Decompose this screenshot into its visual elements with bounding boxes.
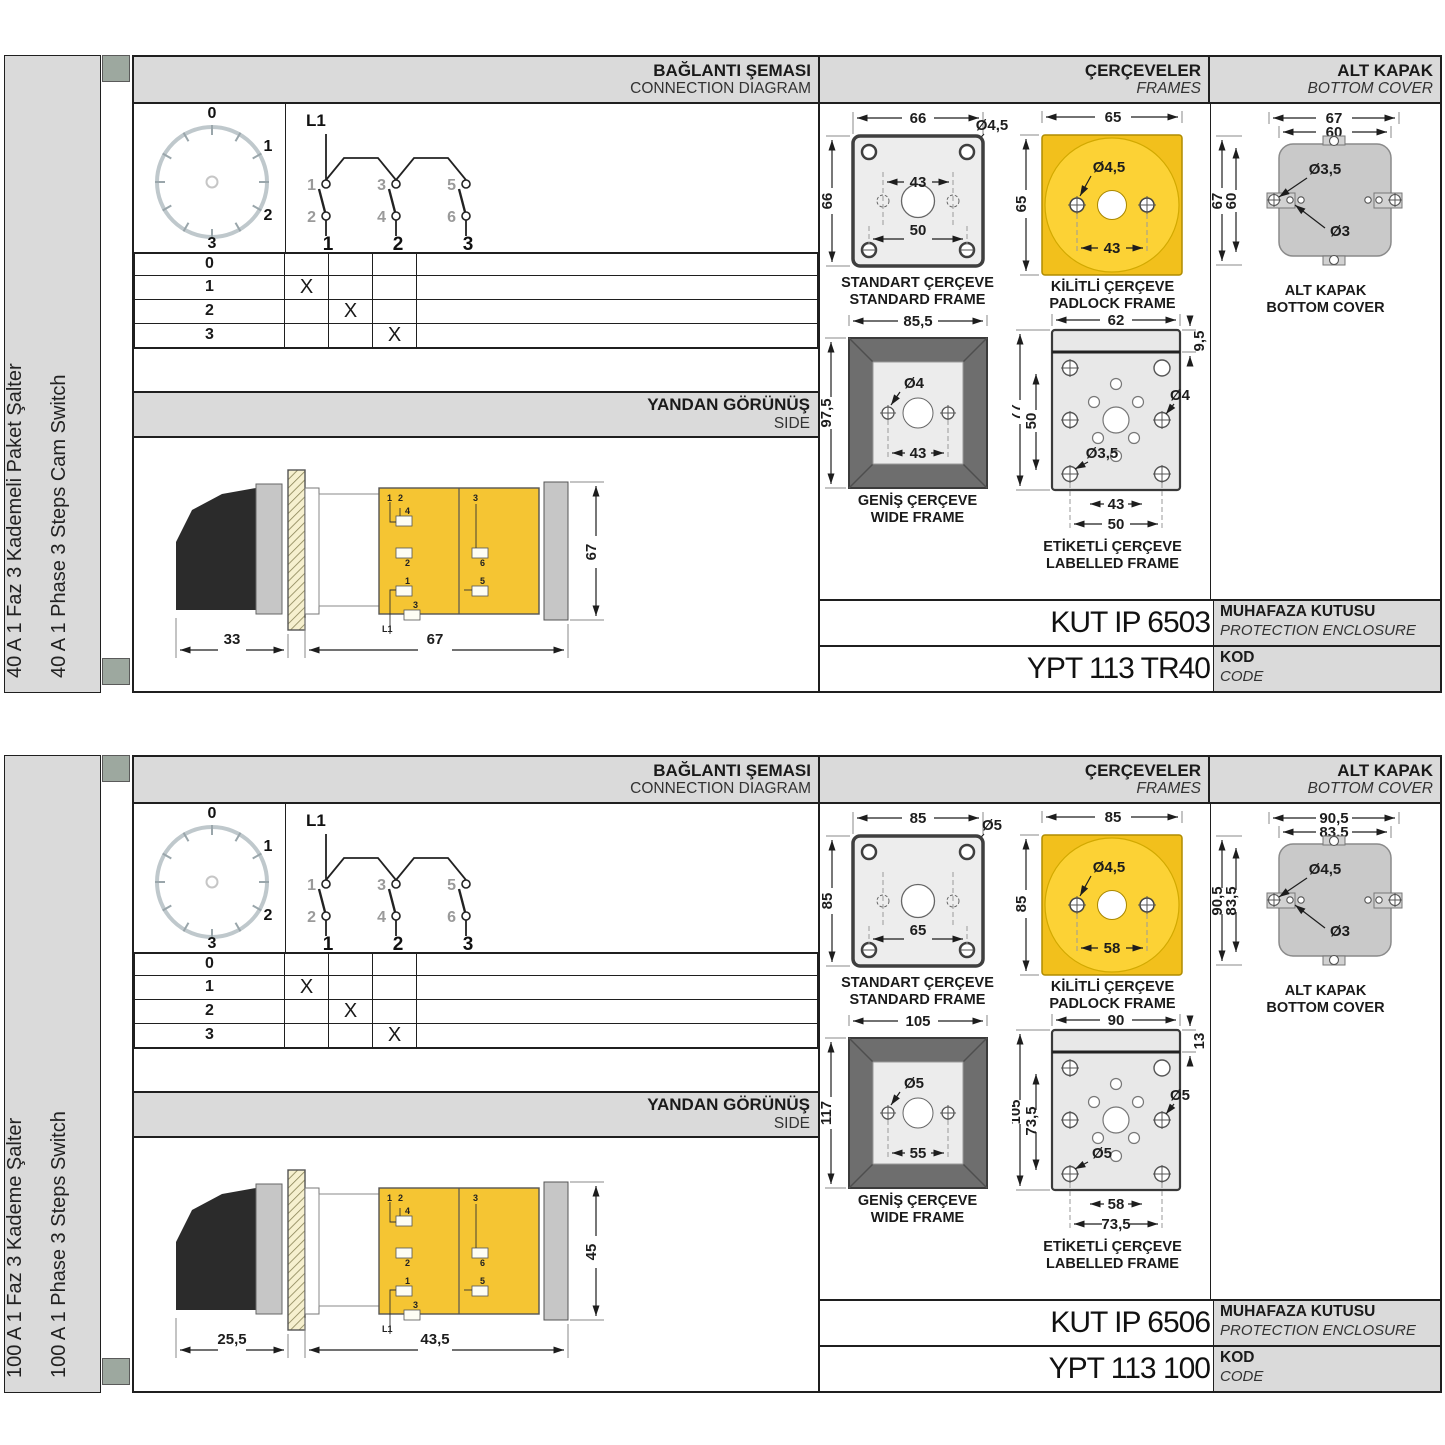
header-frames-en: FRAMES bbox=[1136, 80, 1201, 98]
wide-frame-drawing: 85,5 97,5 bbox=[820, 312, 1015, 494]
frames-cover-row: 66 Ø4,5 66 bbox=[820, 104, 1440, 599]
width-dimension: 62 bbox=[1052, 312, 1180, 329]
dim-hole-dia-left: Ø3,5 bbox=[1085, 445, 1118, 462]
strip-height-dimension: 9,5 bbox=[1182, 318, 1208, 364]
body-label: 1 bbox=[405, 1276, 410, 1286]
caption-en: WIDE FRAME bbox=[858, 510, 977, 527]
wide-frame-cell: 85,5 97,5 bbox=[820, 312, 1015, 572]
spacer bbox=[134, 1049, 818, 1091]
height-dimension: 45 bbox=[570, 1182, 604, 1320]
dim-width: 90 bbox=[1107, 1012, 1124, 1029]
body-label: 3 bbox=[413, 600, 418, 610]
dim-pin-hole-dia: Ø3 bbox=[1330, 223, 1350, 240]
side-view-drawing-area: 1 2 4 2 3 6 1 5 3 L1 bbox=[134, 1138, 818, 1393]
caption-en: PADLOCK FRAME bbox=[1049, 996, 1175, 1013]
filler-cell bbox=[417, 275, 818, 299]
product-section: 40 A 1 Faz 3 Kademeli Paket Şalter 40 A … bbox=[4, 55, 1442, 693]
frames-column: 85 Ø5 85 bbox=[820, 804, 1210, 1299]
mark-cell bbox=[329, 253, 373, 275]
product-code: YPT 113 100 bbox=[820, 1347, 1213, 1391]
position-label: 2 bbox=[135, 999, 285, 1023]
padlock-frame-cell: 85 85 bbox=[1015, 808, 1210, 1012]
width-dimension: 85 bbox=[853, 810, 983, 834]
side-view-header: YANDAN GÖRÜNÜŞ SIDE bbox=[134, 391, 818, 438]
inner-height-dimension: 83,5 bbox=[1223, 848, 1240, 952]
output-3: 3 bbox=[463, 934, 474, 952]
frames-cover-row: 85 Ø5 85 bbox=[820, 804, 1440, 1299]
dim-height: 117 bbox=[820, 1101, 835, 1125]
dim-inner-height: 83,5 bbox=[1223, 886, 1240, 915]
body-label: L1 bbox=[382, 624, 393, 634]
dial-face bbox=[155, 825, 269, 939]
header-connection-diagram: BAĞLANTI ŞEMASI CONNECTION DIAGRAM bbox=[134, 57, 818, 102]
caption-en: STANDARD FRAME bbox=[841, 992, 994, 1009]
diagram-row: 0 1 2 3 L1 bbox=[134, 804, 818, 952]
body-depth-dimension: 43,5 bbox=[305, 1318, 568, 1358]
center-hole bbox=[1098, 891, 1127, 920]
wide-frame-cell: 105 117 bbox=[820, 1012, 1015, 1272]
caption-tr: ALT KAPAK bbox=[1266, 983, 1384, 1000]
header-connection-en: CONNECTION DIAGRAM bbox=[630, 80, 811, 98]
dim-hole-dia: Ø4,5 bbox=[1093, 859, 1126, 876]
labelled-frame-drawing: 62 9,5 bbox=[1012, 312, 1214, 540]
caption-tr: STANDART ÇERÇEVE bbox=[841, 275, 994, 292]
column-headers: BAĞLANTI ŞEMASI CONNECTION DIAGRAM ÇERÇE… bbox=[134, 57, 1440, 104]
width-dimension: 85,5 bbox=[849, 313, 987, 330]
frames-and-cover: 66 Ø4,5 66 bbox=[818, 104, 1440, 691]
front-plate bbox=[305, 1188, 319, 1314]
height-dimension: 117 bbox=[820, 1038, 846, 1188]
side-view-title-tr: YANDAN GÖRÜNÜŞ bbox=[647, 1095, 810, 1115]
dim-inner-height: 60 bbox=[1223, 193, 1240, 210]
connection-column: 0 1 2 3 L1 bbox=[134, 104, 818, 691]
dim-bottom-span: 65 bbox=[910, 922, 927, 939]
frame-caption: GENİŞ ÇERÇEVE WIDE FRAME bbox=[858, 1193, 977, 1226]
filler-cell bbox=[417, 1023, 818, 1048]
mark-cell bbox=[373, 275, 417, 299]
enclosure-label: MUHAFAZA KUTUSU PROTECTION ENCLOSURE bbox=[1213, 1301, 1440, 1345]
enclosure-label-en: PROTECTION ENCLOSURE bbox=[1220, 622, 1440, 640]
bottom-cover-column: 67 60 bbox=[1210, 104, 1440, 599]
side-view-header: YANDAN GÖRÜNÜŞ SIDE bbox=[134, 1091, 818, 1138]
header-frames-en: FRAMES bbox=[1136, 780, 1201, 798]
terminal-5: 5 bbox=[447, 177, 456, 194]
panel-plate bbox=[288, 470, 305, 630]
body-label: 2 bbox=[398, 1193, 403, 1203]
panel-plate bbox=[288, 1170, 305, 1330]
bottom-cover-drawing: 67 60 bbox=[1212, 110, 1439, 284]
center-hole bbox=[903, 398, 933, 428]
binder-strip bbox=[101, 755, 132, 1393]
dim-span: 55 bbox=[910, 1145, 927, 1162]
frames-and-cover: 85 Ø5 85 bbox=[818, 804, 1440, 1391]
mark-cell bbox=[329, 323, 373, 348]
terminal-6: 6 bbox=[447, 909, 456, 926]
section-content: BAĞLANTI ŞEMASI CONNECTION DIAGRAM ÇERÇE… bbox=[132, 755, 1442, 1393]
knob-plate bbox=[256, 1184, 282, 1314]
enclosure-row: KUT IP 6506 MUHAFAZA KUTUSU PROTECTION E… bbox=[820, 1299, 1440, 1345]
body-label: 1 bbox=[387, 493, 392, 503]
labelled-frame-cell: 62 9,5 bbox=[1015, 312, 1210, 572]
mark-cell: X bbox=[285, 975, 329, 999]
switch-dial-diagram: 0 1 2 3 bbox=[134, 804, 286, 950]
binder-tab-bottom bbox=[102, 658, 130, 685]
standard-frame-cell: 66 Ø4,5 66 bbox=[820, 108, 1015, 312]
enclosure-label: MUHAFAZA KUTUSU PROTECTION ENCLOSURE bbox=[1213, 601, 1440, 645]
dim-span: 58 bbox=[1104, 940, 1121, 957]
mark-cell: X bbox=[329, 299, 373, 323]
height-dimension: 66 bbox=[820, 136, 850, 266]
product-code-label: KOD CODE bbox=[1213, 647, 1440, 691]
caption-tr: ALT KAPAK bbox=[1266, 283, 1384, 300]
height-dimension: 67 bbox=[570, 482, 604, 620]
mark-cell bbox=[373, 299, 417, 323]
body-label: 3 bbox=[473, 1193, 478, 1203]
connection-column: 0 1 2 3 L1 bbox=[134, 804, 818, 1391]
switch-dial-diagram: 0 1 2 3 bbox=[134, 104, 286, 250]
caption-en: LABELLED FRAME bbox=[1043, 556, 1182, 573]
filler-cell bbox=[417, 299, 818, 323]
terminal-6: 6 bbox=[447, 209, 456, 226]
caption-tr: GENİŞ ÇERÇEVE bbox=[858, 1193, 977, 1210]
dim-height: 66 bbox=[820, 193, 836, 210]
dim-hole-dia-right: Ø4 bbox=[1169, 387, 1190, 404]
labelled-frame-drawing: 90 13 bbox=[1012, 1012, 1214, 1240]
output-2: 2 bbox=[393, 934, 404, 952]
caption-en: LABELLED FRAME bbox=[1043, 1256, 1182, 1273]
filler-cell bbox=[417, 253, 818, 275]
mark-cell bbox=[285, 323, 329, 348]
dim-hole-dia: Ø5 bbox=[982, 817, 1002, 834]
body-label: 2 bbox=[405, 1258, 410, 1268]
body-label: 2 bbox=[405, 558, 410, 568]
mark-cell bbox=[373, 999, 417, 1023]
caption-en: PADLOCK FRAME bbox=[1049, 296, 1175, 313]
binder-tab-bottom bbox=[102, 1358, 130, 1385]
dim-height: 45 bbox=[583, 1243, 600, 1260]
dim-width: 62 bbox=[1107, 312, 1124, 329]
dim-width: 66 bbox=[910, 110, 927, 127]
position-label: 2 bbox=[135, 299, 285, 323]
product-title-tr: 40 A 1 Faz 3 Kademeli Paket Şalter bbox=[4, 363, 27, 678]
header-connection-tr: BAĞLANTI ŞEMASI bbox=[653, 61, 811, 81]
header-frames-tr: ÇERÇEVELER bbox=[1085, 761, 1201, 781]
product-code: YPT 113 TR40 bbox=[820, 647, 1213, 691]
padlock-frame-drawing: 85 85 bbox=[1015, 808, 1210, 980]
padlock-frame-drawing: 65 65 bbox=[1015, 108, 1210, 280]
end-plate bbox=[544, 482, 568, 620]
dim-span-inner: 43 bbox=[1107, 496, 1124, 513]
dim-span-inner: 58 bbox=[1107, 1196, 1124, 1213]
dim-inner-span: 73,5 bbox=[1023, 1107, 1040, 1136]
height-dimension: 85 bbox=[820, 836, 850, 966]
dim-width: 85 bbox=[1105, 809, 1122, 826]
frame-caption: STANDART ÇERÇEVE STANDARD FRAME bbox=[841, 975, 994, 1008]
diagram-row: 0 1 2 3 L1 bbox=[134, 104, 818, 252]
strip-height-dimension: 13 bbox=[1182, 1018, 1208, 1064]
dim-width: 105 bbox=[905, 1013, 930, 1030]
column-headers: BAĞLANTI ŞEMASI CONNECTION DIAGRAM ÇERÇE… bbox=[134, 757, 1440, 804]
caption-tr: KİLİTLİ ÇERÇEVE bbox=[1049, 279, 1175, 296]
width-dimension: 90 bbox=[1052, 1012, 1180, 1029]
switching-table: 0 1 X 2 bbox=[134, 252, 818, 349]
position-label: 0 bbox=[135, 953, 285, 975]
position-label: 1 bbox=[135, 275, 285, 299]
output-1: 1 bbox=[323, 934, 334, 952]
header-connection-diagram: BAĞLANTI ŞEMASI CONNECTION DIAGRAM bbox=[134, 757, 818, 802]
mark-cell bbox=[373, 953, 417, 975]
dial-face bbox=[155, 125, 269, 239]
caption-en: BOTTOM COVER bbox=[1266, 1000, 1384, 1017]
labelled-frame-cell: 90 13 bbox=[1015, 1012, 1210, 1272]
frame-caption: ETİKETLİ ÇERÇEVE LABELLED FRAME bbox=[1043, 539, 1182, 572]
circuit-wiring bbox=[326, 834, 466, 880]
header-cover-tr: ALT KAPAK bbox=[1337, 61, 1433, 81]
table-row: 1 X bbox=[135, 975, 818, 999]
bottom-cover-drawing: 90,5 83,5 bbox=[1212, 810, 1439, 984]
width-dimension: 85 bbox=[1042, 809, 1182, 826]
code-label-tr: KOD bbox=[1220, 649, 1440, 668]
header-frames: ÇERÇEVELER FRAMES bbox=[818, 57, 1208, 102]
padlock-frame-cell: 65 65 bbox=[1015, 108, 1210, 312]
mark-cell bbox=[373, 253, 417, 275]
position-label: 0 bbox=[135, 253, 285, 275]
enclosure-code: KUT IP 6506 bbox=[820, 1301, 1213, 1345]
dim-hole-dia-left: Ø5 bbox=[1091, 1145, 1111, 1162]
body-label: 5 bbox=[480, 576, 485, 586]
dim-span: 43 bbox=[1104, 240, 1121, 257]
binder-tab-top bbox=[102, 755, 130, 782]
dim-height: 97,5 bbox=[820, 399, 835, 428]
mark-cell bbox=[285, 1023, 329, 1048]
table-row: 2 X bbox=[135, 999, 818, 1023]
side-view-title-en: SIDE bbox=[774, 415, 810, 433]
terminal-4: 4 bbox=[377, 909, 386, 926]
code-label-en: CODE bbox=[1220, 1368, 1440, 1386]
product-title-tr: 100 A 1 Faz 3 Kademe Şalter bbox=[4, 1118, 27, 1378]
body-depth-dimension: 67 bbox=[305, 618, 568, 658]
dial-cell: 0 1 2 3 bbox=[134, 104, 286, 252]
terminal-2: 2 bbox=[307, 909, 316, 926]
body-label: 6 bbox=[480, 558, 485, 568]
standard-frame-drawing: 85 Ø5 85 bbox=[820, 808, 1015, 976]
dim-width: 85 bbox=[910, 810, 927, 827]
dial-pos-1: 1 bbox=[264, 838, 273, 855]
enclosure-label-tr: MUHAFAZA KUTUSU bbox=[1220, 603, 1440, 622]
dim-body-depth: 67 bbox=[427, 631, 444, 648]
dim-pin-hole-dia: Ø3 bbox=[1330, 923, 1350, 940]
front-plate bbox=[305, 488, 319, 614]
caption-en: BOTTOM COVER bbox=[1266, 300, 1384, 317]
cover-caption: ALT KAPAK BOTTOM COVER bbox=[1266, 283, 1384, 316]
spacer bbox=[134, 349, 818, 391]
header-cover-en: BOTTOM COVER bbox=[1308, 80, 1433, 98]
terminal-1: 1 bbox=[307, 877, 316, 894]
mark-cell: X bbox=[373, 1023, 417, 1048]
header-bottom-cover: ALT KAPAK BOTTOM COVER bbox=[1208, 57, 1440, 102]
standard-frame-cell: 85 Ø5 85 bbox=[820, 808, 1015, 1012]
mark-cell: X bbox=[373, 323, 417, 348]
switching-table: 0 1 X 2 bbox=[134, 952, 818, 1049]
dim-strip-height: 13 bbox=[1191, 1033, 1208, 1050]
dim-hole-dia: Ø4,5 bbox=[976, 117, 1009, 134]
terminal-2: 2 bbox=[307, 209, 316, 226]
line-label: L1 bbox=[306, 111, 326, 130]
dim-hole-dia: Ø4 bbox=[904, 375, 925, 392]
table-row: 1 X bbox=[135, 275, 818, 299]
position-label: 3 bbox=[135, 1023, 285, 1048]
side-view-title-tr: YANDAN GÖRÜNÜŞ bbox=[647, 395, 810, 415]
body-label: 1 bbox=[405, 576, 410, 586]
cover-caption: ALT KAPAK BOTTOM COVER bbox=[1266, 983, 1384, 1016]
bottom-cover-column: 90,5 83,5 bbox=[1210, 804, 1440, 1299]
terminal-1: 1 bbox=[307, 177, 316, 194]
body-label: 5 bbox=[480, 1276, 485, 1286]
circuit-diagram: L1 bbox=[286, 104, 814, 252]
side-label-bar: 40 A 1 Faz 3 Kademeli Paket Şalter 40 A … bbox=[4, 55, 101, 693]
dim-bottom-span: 50 bbox=[910, 222, 927, 239]
caption-tr: ETİKETLİ ÇERÇEVE bbox=[1043, 539, 1182, 556]
product-code-row: YPT 113 TR40 KOD CODE bbox=[820, 645, 1440, 691]
outer-height-dimension: 77 bbox=[1012, 330, 1050, 490]
height-dimension: 97,5 bbox=[820, 338, 846, 488]
caption-en: WIDE FRAME bbox=[858, 1210, 977, 1227]
center-hole bbox=[903, 1098, 933, 1128]
bearing-section bbox=[319, 1194, 379, 1306]
width-dimension: 105 bbox=[849, 1013, 987, 1030]
enclosure-label-en: PROTECTION ENCLOSURE bbox=[1220, 1322, 1440, 1340]
dim-span: 43 bbox=[910, 445, 927, 462]
dim-width: 65 bbox=[1105, 109, 1122, 126]
dim-height: 85 bbox=[1015, 896, 1030, 913]
circuit-wiring bbox=[326, 134, 466, 180]
height-dimension: 85 bbox=[1015, 835, 1039, 975]
frame-caption: KİLİTLİ ÇERÇEVE PADLOCK FRAME bbox=[1049, 979, 1175, 1012]
dial-pos-2: 2 bbox=[264, 207, 273, 224]
frame-caption: ETİKETLİ ÇERÇEVE LABELLED FRAME bbox=[1043, 1239, 1182, 1272]
standard-frame-drawing: 66 Ø4,5 66 bbox=[820, 108, 1015, 276]
header-frames-tr: ÇERÇEVELER bbox=[1085, 61, 1201, 81]
dial-pos-0: 0 bbox=[208, 805, 217, 822]
mark-cell bbox=[329, 953, 373, 975]
output-3: 3 bbox=[463, 234, 474, 252]
caption-tr: ETİKETLİ ÇERÇEVE bbox=[1043, 1239, 1182, 1256]
terminal-5: 5 bbox=[447, 877, 456, 894]
binder-strip bbox=[101, 55, 132, 693]
frame-caption: GENİŞ ÇERÇEVE WIDE FRAME bbox=[858, 493, 977, 526]
body-label: 4 bbox=[405, 506, 410, 516]
dim-inner-span: 50 bbox=[1023, 413, 1040, 430]
header-connection-en: CONNECTION DIAGRAM bbox=[630, 780, 811, 798]
header-bottom-cover: ALT KAPAK BOTTOM COVER bbox=[1208, 757, 1440, 802]
dial-pos-2: 2 bbox=[264, 907, 273, 924]
code-label-en: CODE bbox=[1220, 668, 1440, 686]
header-frames: ÇERÇEVELER FRAMES bbox=[818, 757, 1208, 802]
catalog-page: 40 A 1 Faz 3 Kademeli Paket Şalter 40 A … bbox=[0, 0, 1445, 1445]
body-label: 3 bbox=[473, 493, 478, 503]
center-hole bbox=[902, 885, 935, 918]
product-section: 100 A 1 Faz 3 Kademe Şalter 100 A 1 Phas… bbox=[4, 755, 1442, 1393]
filler-cell bbox=[417, 999, 818, 1023]
center-hole bbox=[1098, 191, 1127, 220]
handle-depth-dimension: 25,5 bbox=[176, 1318, 288, 1358]
enclosure-label-tr: MUHAFAZA KUTUSU bbox=[1220, 1303, 1440, 1322]
height-dimension: 65 bbox=[1015, 135, 1039, 275]
product-code-row: YPT 113 100 KOD CODE bbox=[820, 1345, 1440, 1391]
product-title-en: 40 A 1 Phase 3 Steps Cam Switch bbox=[48, 374, 71, 678]
circuit-cell: L1 bbox=[286, 804, 818, 952]
inner-span-dimension: 50 bbox=[1023, 374, 1040, 470]
dim-height: 67 bbox=[583, 543, 600, 560]
mark-cell bbox=[373, 975, 417, 999]
frame-caption: KİLİTLİ ÇERÇEVE PADLOCK FRAME bbox=[1049, 279, 1175, 312]
terminal-4: 4 bbox=[377, 209, 386, 226]
side-label-bar: 100 A 1 Faz 3 Kademe Şalter 100 A 1 Phas… bbox=[4, 755, 101, 1393]
circuit-cell: L1 bbox=[286, 104, 818, 252]
caption-tr: GENİŞ ÇERÇEVE bbox=[858, 493, 977, 510]
dim-mid-span: 43 bbox=[910, 174, 927, 191]
side-view-title-en: SIDE bbox=[774, 1115, 810, 1133]
body-label: L1 bbox=[382, 1324, 393, 1334]
dial-pos-3: 3 bbox=[208, 935, 217, 950]
enclosure-code: KUT IP 6503 bbox=[820, 601, 1213, 645]
body-label: 6 bbox=[480, 1258, 485, 1268]
product-code-label: KOD CODE bbox=[1213, 1347, 1440, 1391]
mark-cell bbox=[285, 953, 329, 975]
terminal-3: 3 bbox=[377, 177, 386, 194]
dial-pos-1: 1 bbox=[264, 138, 273, 155]
mark-cell: X bbox=[329, 999, 373, 1023]
dim-hole-dia: Ø5 bbox=[904, 1075, 924, 1092]
cam-body: 1 2 4 2 3 6 1 5 3 L1 bbox=[379, 1188, 539, 1334]
frame-caption: STANDART ÇERÇEVE STANDARD FRAME bbox=[841, 275, 994, 308]
body-label: 4 bbox=[405, 1206, 410, 1216]
dial-cell: 0 1 2 3 bbox=[134, 804, 286, 952]
body-label: 1 bbox=[387, 1193, 392, 1203]
frames-column: 66 Ø4,5 66 bbox=[820, 104, 1210, 599]
caption-en: STANDARD FRAME bbox=[841, 292, 994, 309]
dim-hole-dia-right: Ø5 bbox=[1169, 1087, 1189, 1104]
side-view-drawing: 1 2 4 2 3 6 1 5 3 L1 bbox=[134, 1138, 818, 1388]
mark-cell bbox=[329, 975, 373, 999]
code-label-tr: KOD bbox=[1220, 1349, 1440, 1368]
dim-strip-height: 9,5 bbox=[1191, 331, 1208, 352]
dim-span-outer: 73,5 bbox=[1101, 1216, 1130, 1233]
inner-span-dimension: 73,5 bbox=[1023, 1074, 1040, 1170]
mark-cell bbox=[329, 1023, 373, 1048]
mark-cell bbox=[285, 999, 329, 1023]
body-label: 3 bbox=[413, 1300, 418, 1310]
section-body: 0 1 2 3 L1 bbox=[134, 804, 1440, 1391]
caption-tr: STANDART ÇERÇEVE bbox=[841, 975, 994, 992]
output-1: 1 bbox=[323, 234, 334, 252]
output-2: 2 bbox=[393, 234, 404, 252]
filler-cell bbox=[417, 323, 818, 348]
handle-depth-dimension: 33 bbox=[176, 618, 288, 658]
table-row: 3 X bbox=[135, 323, 818, 348]
inner-height-dimension: 60 bbox=[1223, 148, 1240, 252]
dim-handle-depth: 25,5 bbox=[217, 1331, 246, 1348]
mark-cell bbox=[329, 275, 373, 299]
filler-cell bbox=[417, 953, 818, 975]
dim-height: 65 bbox=[1015, 196, 1030, 213]
line-label: L1 bbox=[306, 811, 326, 830]
filler-cell bbox=[417, 975, 818, 999]
mark-cell bbox=[285, 253, 329, 275]
table-row: 0 bbox=[135, 953, 818, 975]
dim-width: 85,5 bbox=[903, 313, 932, 330]
width-dimension: 66 bbox=[853, 110, 983, 134]
